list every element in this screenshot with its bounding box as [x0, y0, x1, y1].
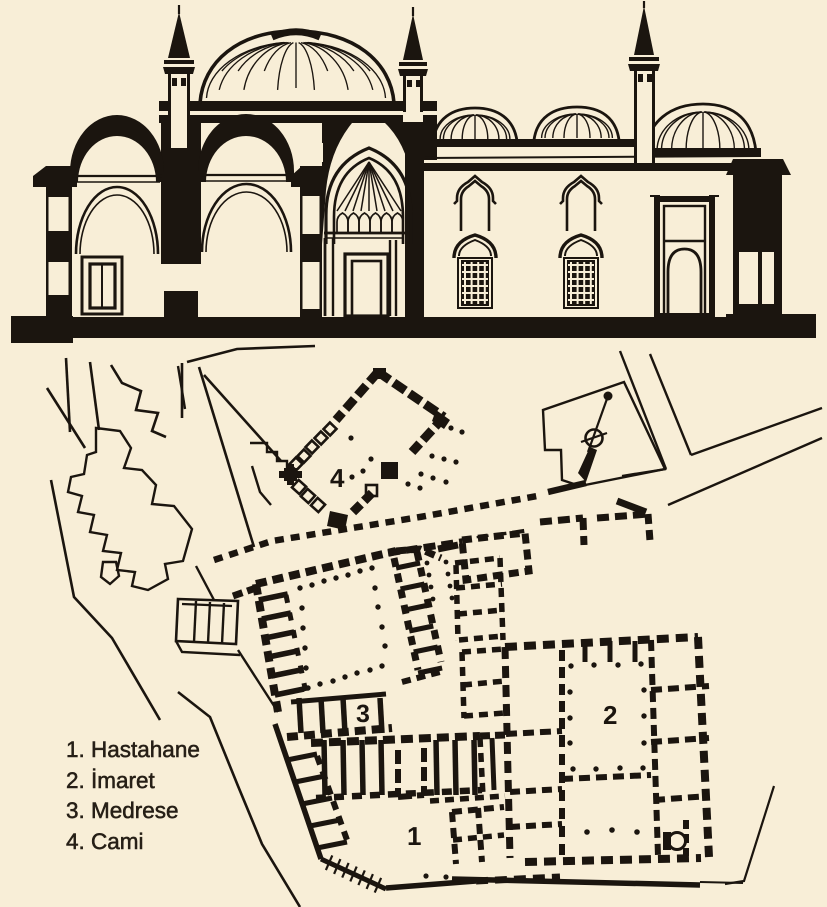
svg-text:1. Hastahane: 1. Hastahane — [66, 737, 200, 762]
svg-text:3. Medrese: 3. Medrese — [66, 798, 179, 823]
svg-text:2: 2 — [603, 700, 617, 730]
svg-text:4: 4 — [330, 463, 345, 493]
svg-text:2. İmaret: 2. İmaret — [66, 768, 156, 793]
svg-text:3: 3 — [356, 700, 370, 728]
svg-text:4. Cami: 4. Cami — [66, 829, 144, 854]
svg-text:1: 1 — [407, 821, 421, 851]
